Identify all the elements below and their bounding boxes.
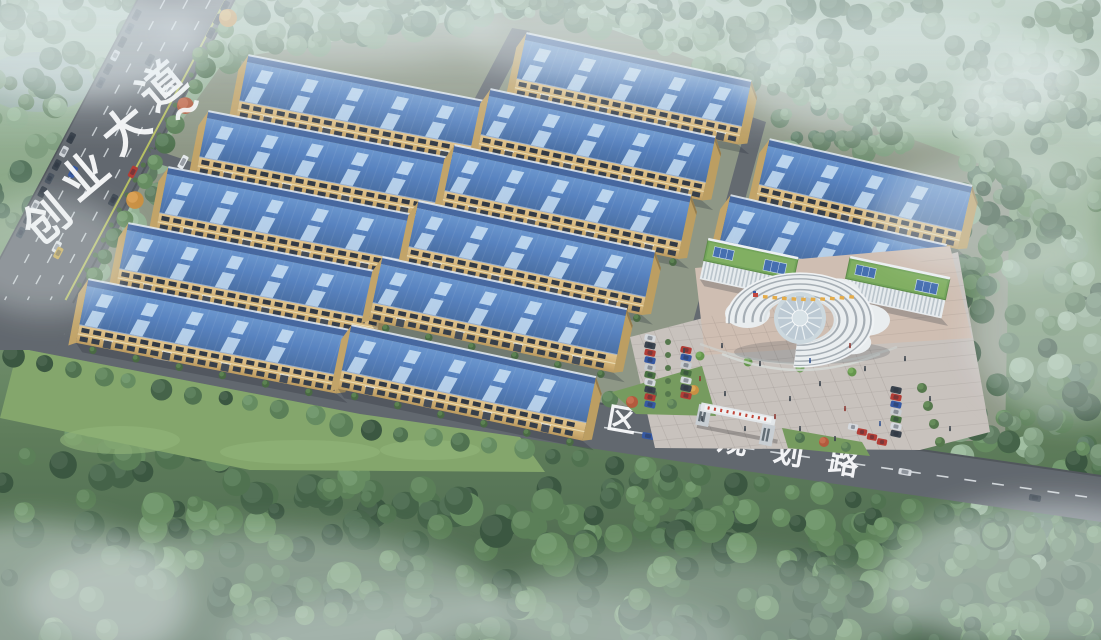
aerial-rendering: 区间规划路创业大道 [0,0,1101,640]
cool-tint-overlay [0,0,1101,640]
industrial-park-scene: 区间规划路创业大道 [0,0,1101,640]
